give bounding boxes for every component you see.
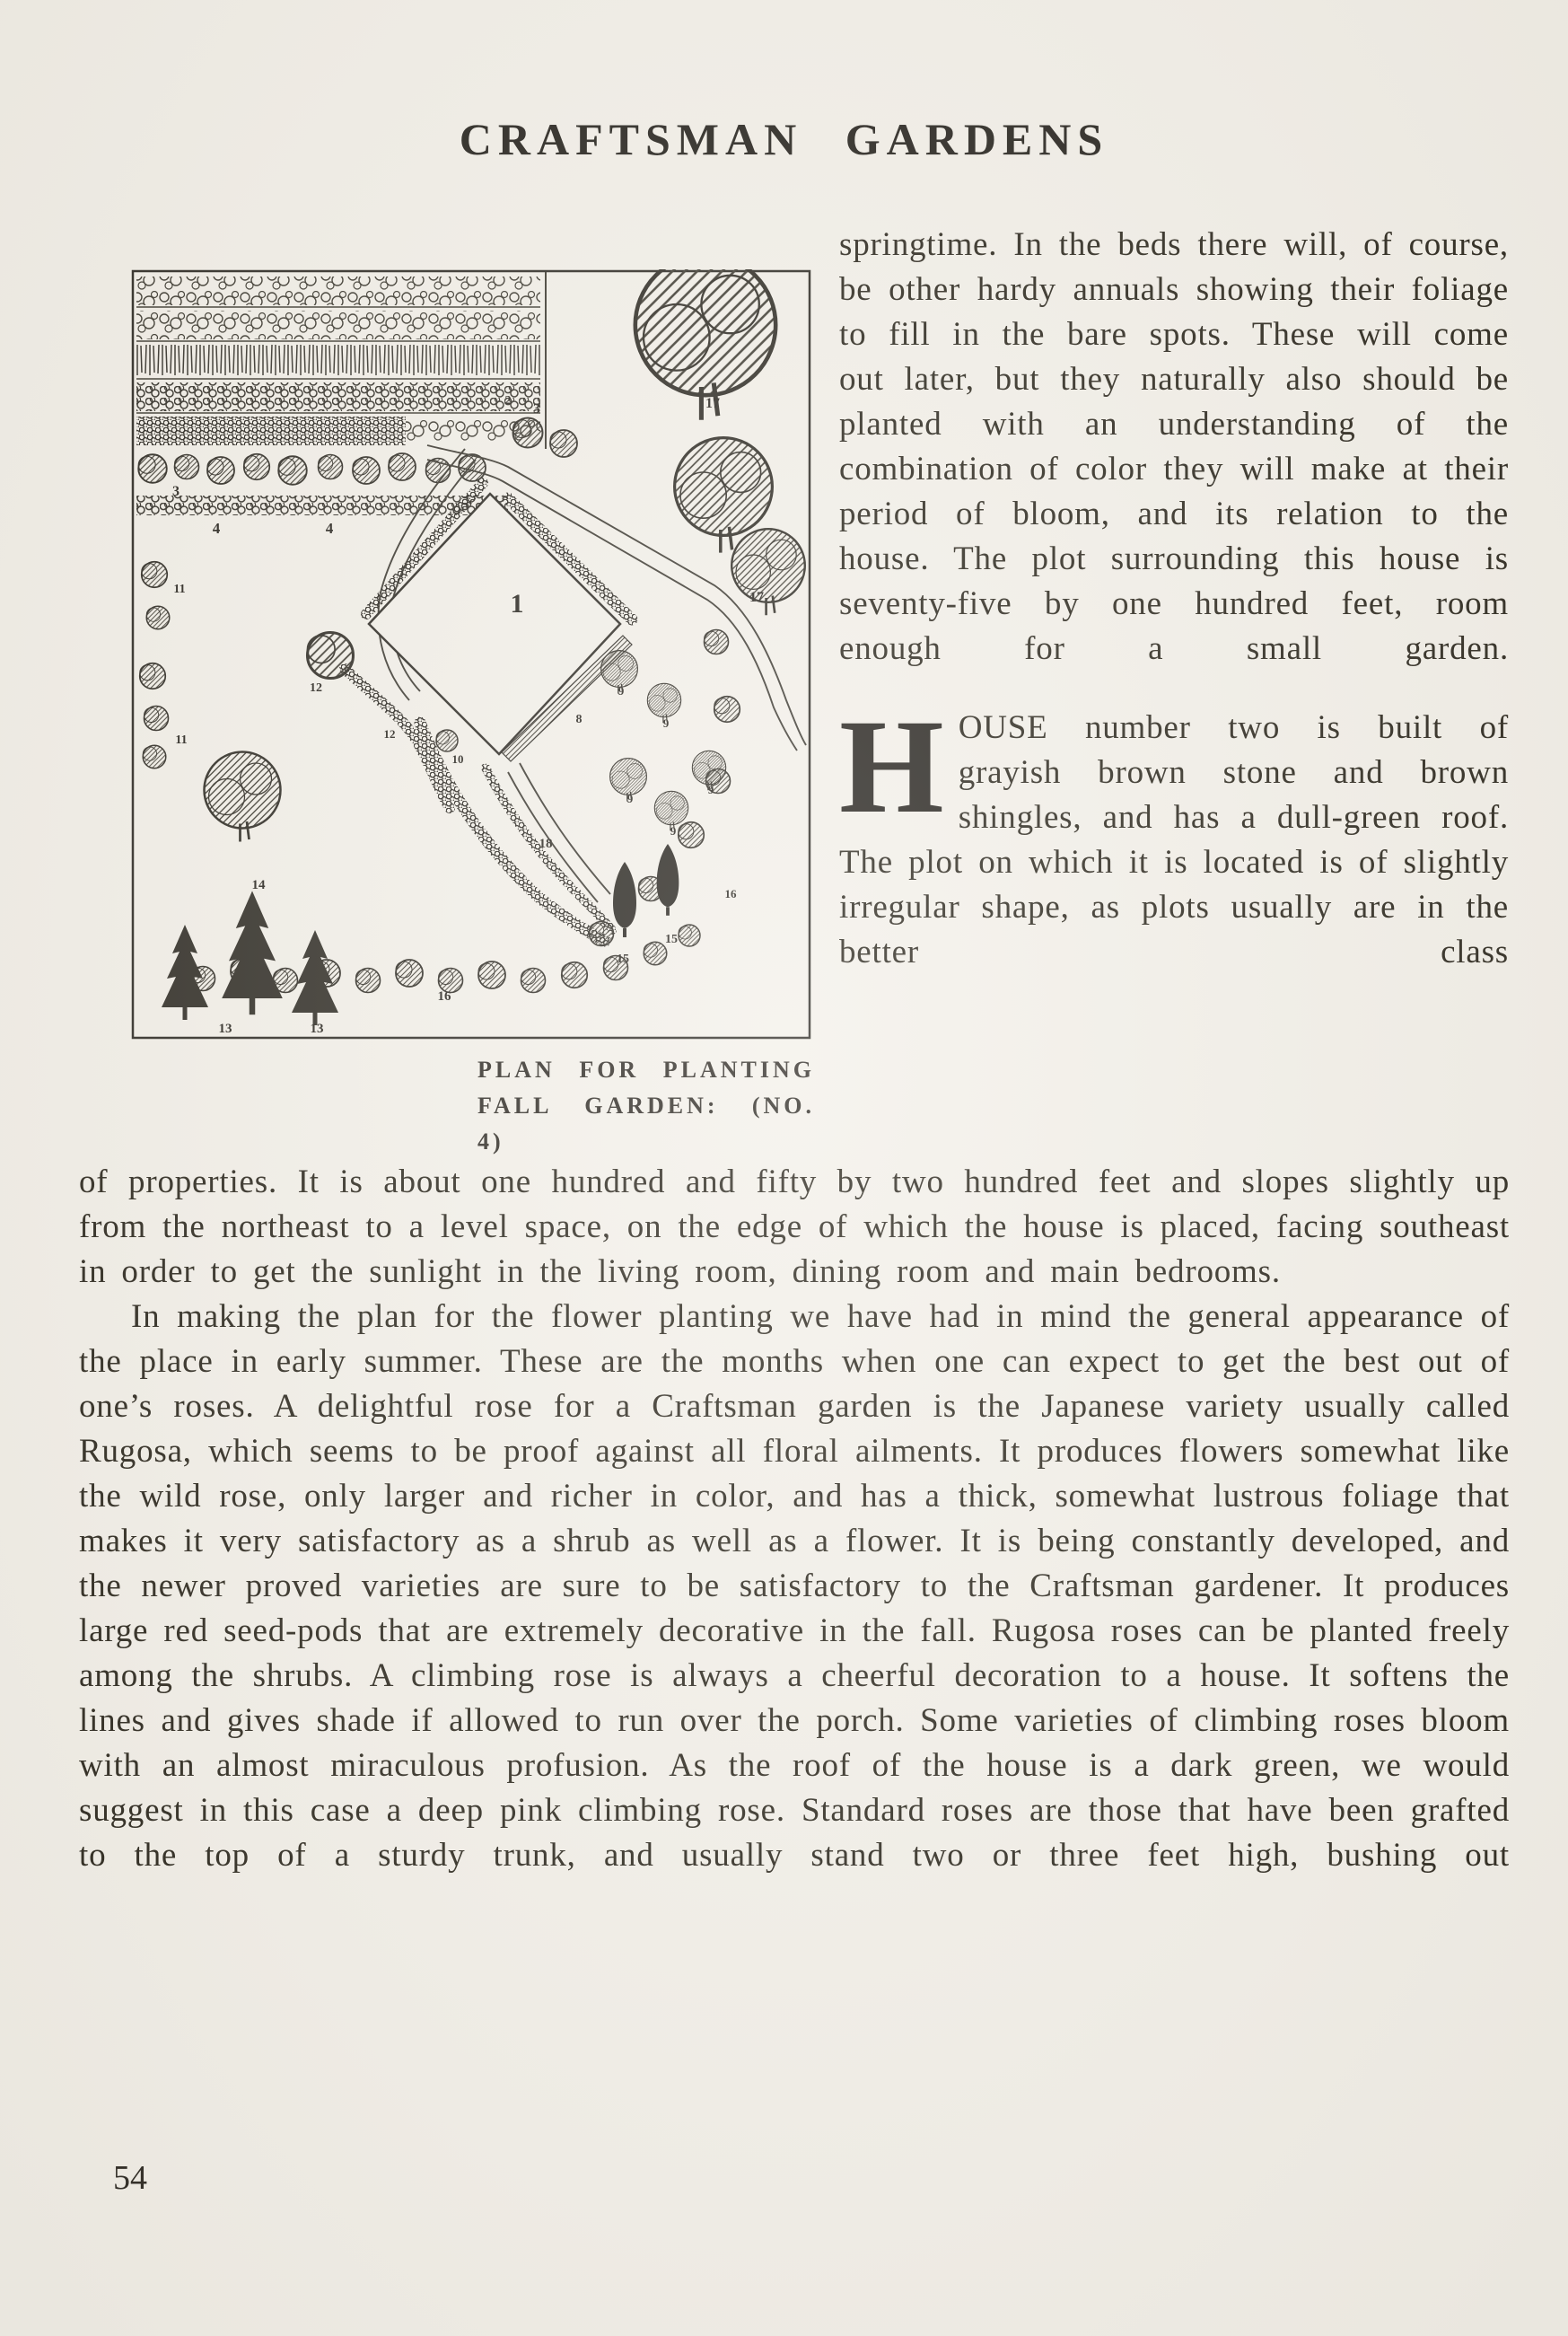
- plan-label-15a: 15: [617, 953, 629, 966]
- plan-label-18: 18: [539, 837, 553, 851]
- plan-label-4b: 4: [326, 520, 334, 537]
- left-shrub-column: [140, 562, 170, 768]
- plan-label-9e: 9: [708, 783, 714, 796]
- plan-label-15b: 15: [665, 933, 678, 946]
- plan-label-12a: 12: [310, 681, 322, 695]
- paragraph-roses: In making the plan for the flower planti…: [79, 1295, 1510, 1878]
- plan-label-9a: 9: [618, 684, 625, 698]
- plan-label-12b: 12: [384, 727, 396, 741]
- plan-label-8: 8: [576, 713, 583, 726]
- plan-label-17b: 17: [749, 590, 764, 605]
- plan-label-1: 1: [511, 589, 524, 619]
- plan-label-3a: 3: [172, 484, 180, 499]
- plan-label-13a: 13: [219, 1022, 232, 1036]
- plan-label-9b: 9: [663, 716, 670, 730]
- figure-caption: PLAN FOR PLANTING FALL GARDEN: (NO. 4): [477, 1052, 815, 1160]
- plan-label-16b: 16: [725, 887, 738, 900]
- plan-label-17a: 17: [705, 396, 720, 411]
- plan-label-2: 2: [505, 394, 512, 408]
- figure-caption-line1: PLAN FOR PLANTING: [477, 1052, 815, 1088]
- plan-label-10: 10: [452, 752, 464, 766]
- page-number: 54: [113, 2158, 147, 2198]
- plan-label-9c: 9: [627, 792, 634, 805]
- garden-plan-figure: 1 2 3 3 4 4 8 9 9 9 9 9 10 11 11 12 12 1…: [131, 269, 813, 1041]
- plan-label-4a: 4: [213, 520, 221, 537]
- planting-bed-rows: [136, 272, 546, 449]
- drop-cap: H: [839, 706, 959, 821]
- scanned-book-page: CRAFTSMAN GARDENS: [0, 0, 1568, 2336]
- plan-label-13b: 13: [311, 1022, 324, 1036]
- right-text-column: springtime. In the beds there will, of c…: [839, 223, 1509, 975]
- main-text-block: of properties. It is about one hundred a…: [79, 1160, 1510, 1878]
- paragraph-house: HOUSE number two is built of grayish bro…: [839, 706, 1509, 975]
- page-title: CRAFTSMAN GARDENS: [0, 113, 1568, 165]
- plan-label-3b: 3: [533, 401, 540, 417]
- paragraph-springtime: springtime. In the beds there will, of c…: [839, 223, 1509, 672]
- plan-label-11b: 11: [175, 733, 187, 747]
- figure-caption-line2: FALL GARDEN: (NO. 4): [477, 1088, 815, 1160]
- plan-label-11a: 11: [173, 583, 185, 596]
- plan-label-14: 14: [252, 878, 267, 892]
- garden-plan-illustration: 1 2 3 3 4 4 8 9 9 9 9 9 10 11 11 12 12 1…: [131, 269, 813, 1041]
- paragraph-properties: of properties. It is about one hundred a…: [79, 1160, 1510, 1295]
- plan-label-9d: 9: [670, 824, 677, 838]
- plan-label-16a: 16: [438, 989, 452, 1004]
